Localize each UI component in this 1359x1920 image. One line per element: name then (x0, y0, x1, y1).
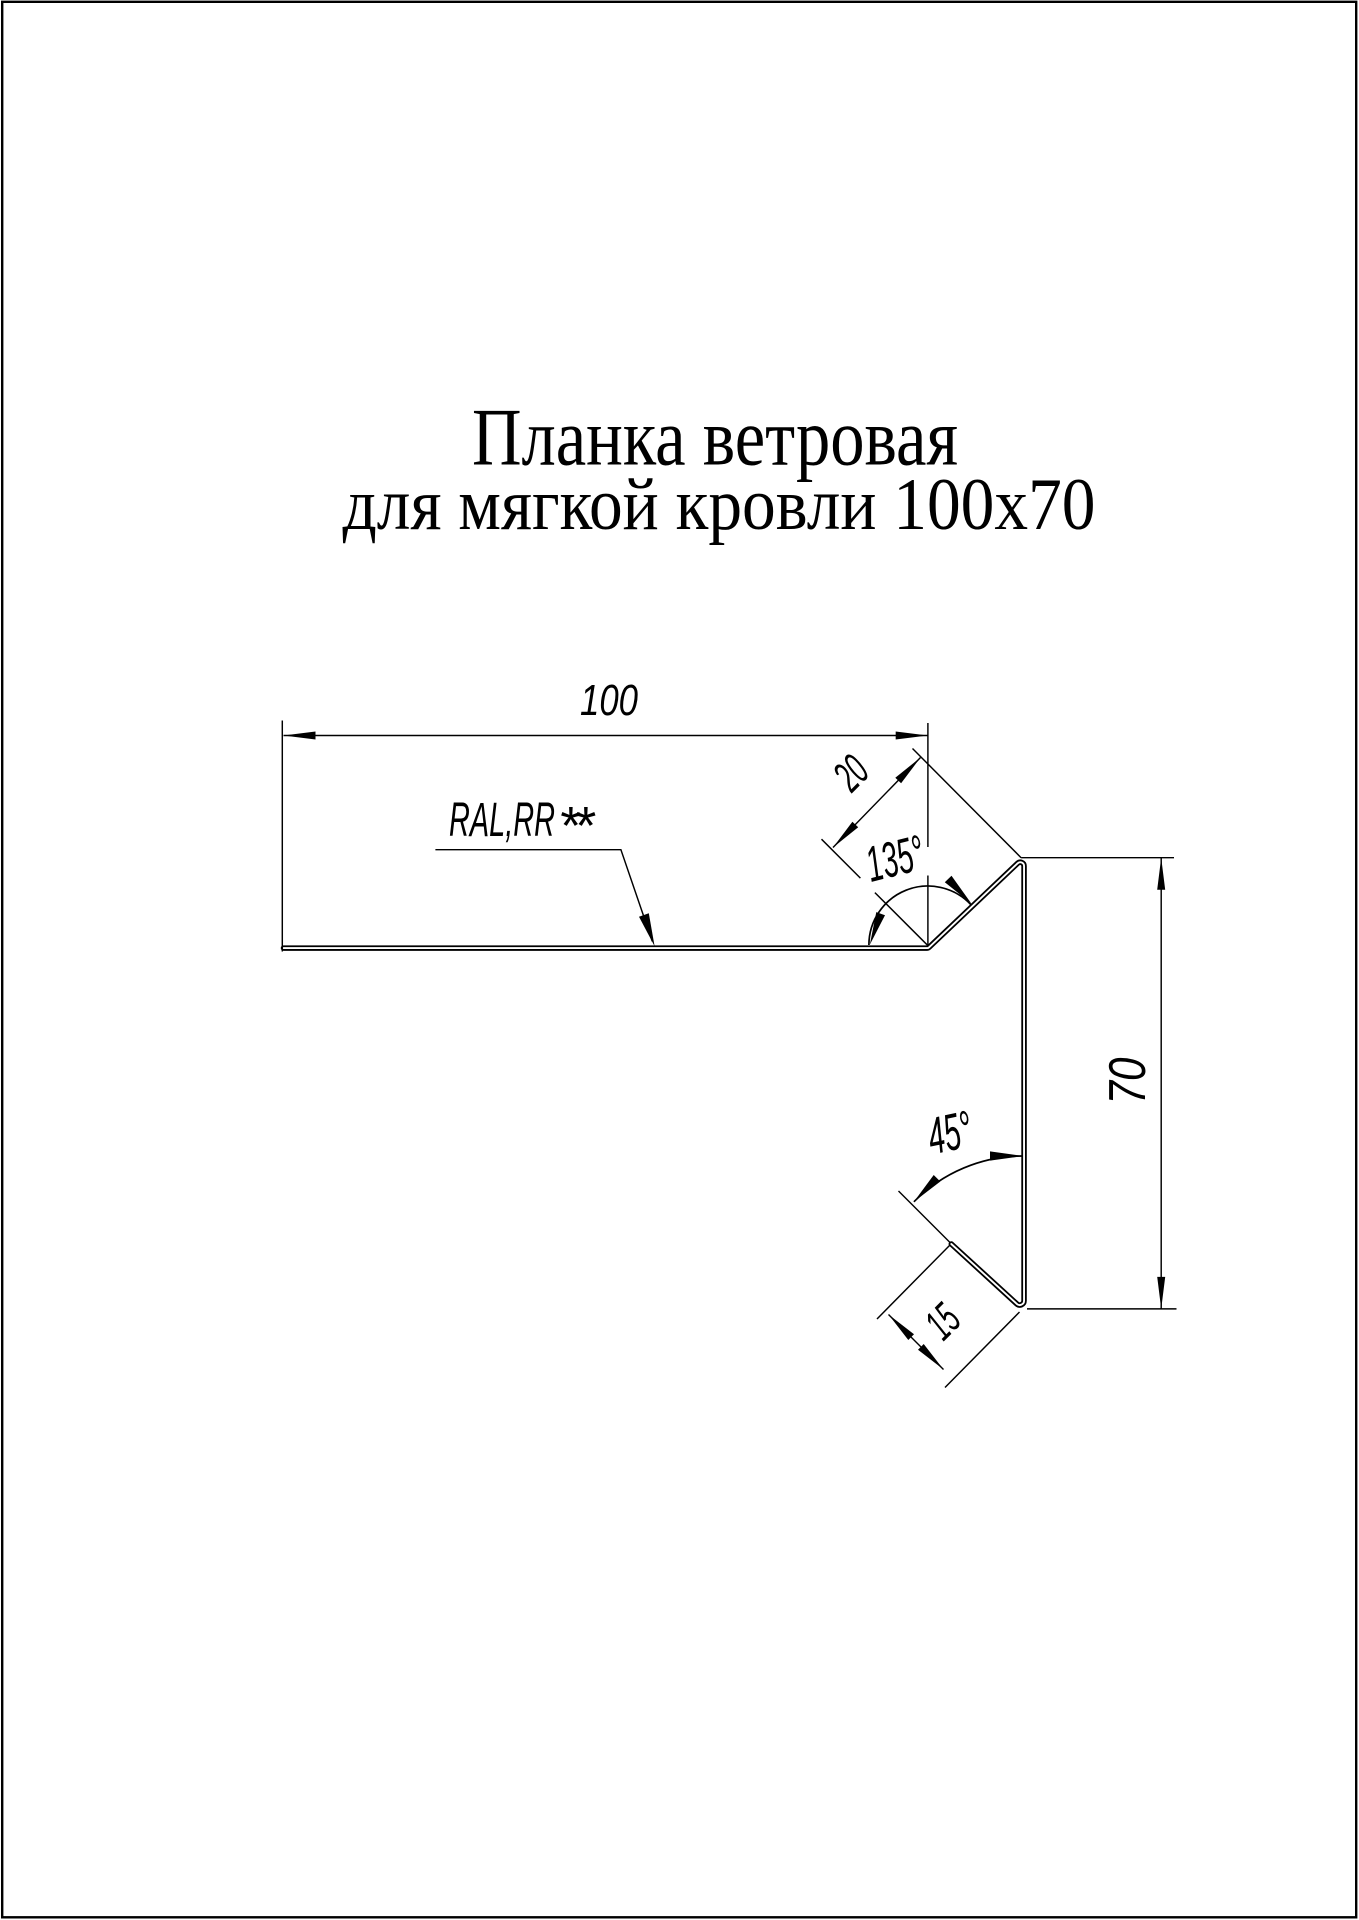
svg-text:для мягкой кровли 100х70: для мягкой кровли 100х70 (343, 464, 1096, 546)
svg-text:100: 100 (580, 676, 638, 725)
svg-text:RAL,RR: RAL,RR (449, 794, 555, 847)
svg-text:70: 70 (1099, 1057, 1157, 1104)
